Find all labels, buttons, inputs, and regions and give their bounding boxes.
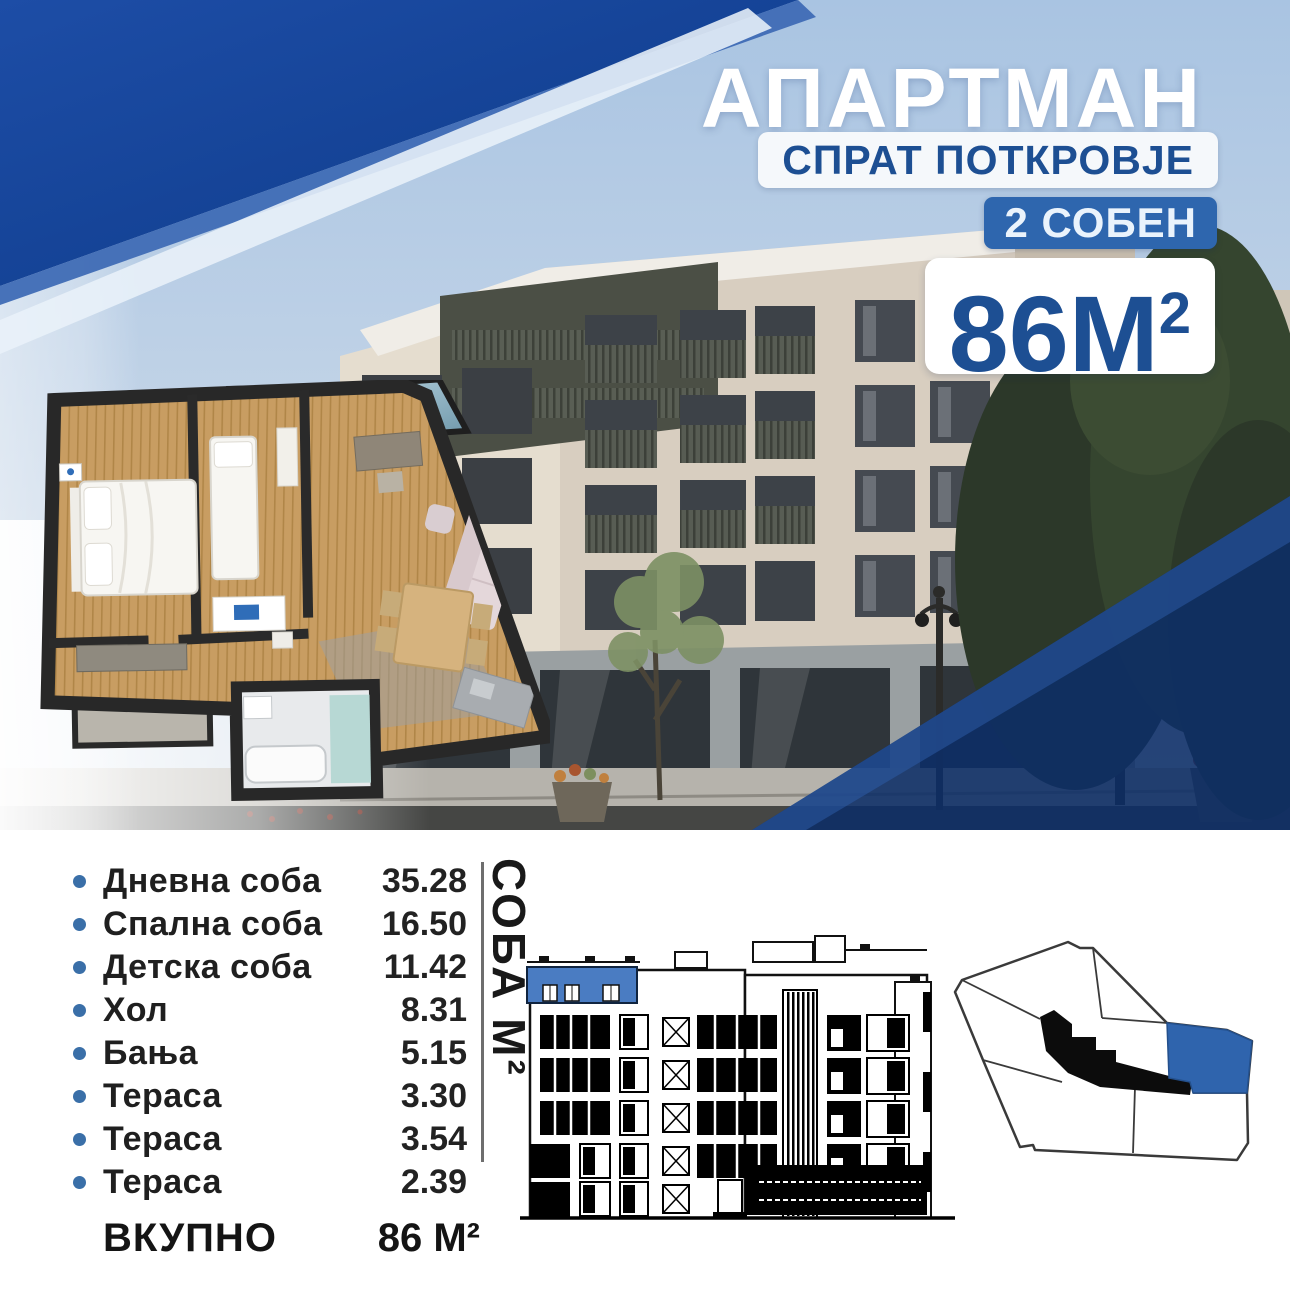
area-superscript: 2: [1159, 281, 1191, 346]
room-label: Хол: [103, 991, 168, 1030]
credenza: [77, 644, 187, 672]
total-row: ВКУПНО 86 М²: [60, 1216, 480, 1261]
rooms-badge: 2 СОБЕН: [984, 197, 1217, 249]
room-row: Тераса2.39: [60, 1165, 467, 1199]
room-label: Спална соба: [103, 905, 323, 944]
room-row: Бања5.15: [60, 1036, 467, 1070]
room-label: Бања: [103, 1034, 198, 1073]
total-value: 86 М²: [378, 1216, 480, 1261]
bullet-icon: [73, 1090, 86, 1103]
floor-plan-3d: [28, 380, 550, 842]
room-label: Детска соба: [103, 948, 312, 987]
room-label: Тераса: [103, 1163, 222, 1202]
room-row: Детска соба11.42: [60, 950, 467, 984]
room-value: 3.30: [401, 1077, 467, 1116]
area-value: 86М: [949, 273, 1159, 394]
bullet-icon: [73, 1047, 86, 1060]
bathroom: [236, 685, 376, 794]
flyer-canvas: АПАРТМАН СПРАТ ПОТКРОВЈЕ 2 СОБЕН 86М2 Дн…: [0, 0, 1290, 1290]
page-title: АПАРТМАН: [701, 56, 1203, 140]
floor-key-plan: [950, 935, 1290, 1225]
room-row: Тераса3.30: [60, 1079, 467, 1113]
room-value: 3.54: [401, 1120, 467, 1159]
storefront: [745, 1165, 927, 1215]
bullet-icon: [73, 875, 86, 888]
room-label: Тераса: [103, 1120, 222, 1159]
room-row: Дневна соба35.28: [60, 864, 467, 898]
bullet-icon: [73, 961, 86, 974]
building-elevation-drawing: [515, 930, 960, 1260]
room-value: 5.15: [401, 1034, 467, 1073]
room-label: Дневна соба: [103, 862, 322, 901]
room-list: Дневна соба35.28 Спална соба16.50 Детска…: [60, 864, 467, 1199]
room-row: Тераса3.54: [60, 1122, 467, 1156]
area-box: 86М2: [925, 258, 1215, 374]
shelf: [277, 428, 298, 486]
double-bed: [70, 480, 198, 596]
room-value: 11.42: [384, 948, 467, 987]
room-value: 16.50: [382, 905, 467, 944]
attic-highlight: [527, 967, 637, 1003]
room-value: 2.39: [401, 1163, 467, 1202]
room-row: Хол8.31: [60, 993, 467, 1027]
bullet-icon: [73, 1004, 86, 1017]
room-label: Тераса: [103, 1077, 222, 1116]
bullet-icon: [73, 918, 86, 931]
bullet-icon: [73, 1133, 86, 1146]
bullet-icon: [73, 1176, 86, 1189]
floor-label: СПРАТ ПОТКРОВЈЕ: [758, 132, 1218, 188]
room-row: Спална соба16.50: [60, 907, 467, 941]
room-value: 35.28: [382, 862, 467, 901]
single-bed: [210, 437, 258, 580]
total-label: ВКУПНО: [103, 1216, 277, 1261]
room-value: 8.31: [401, 991, 467, 1030]
